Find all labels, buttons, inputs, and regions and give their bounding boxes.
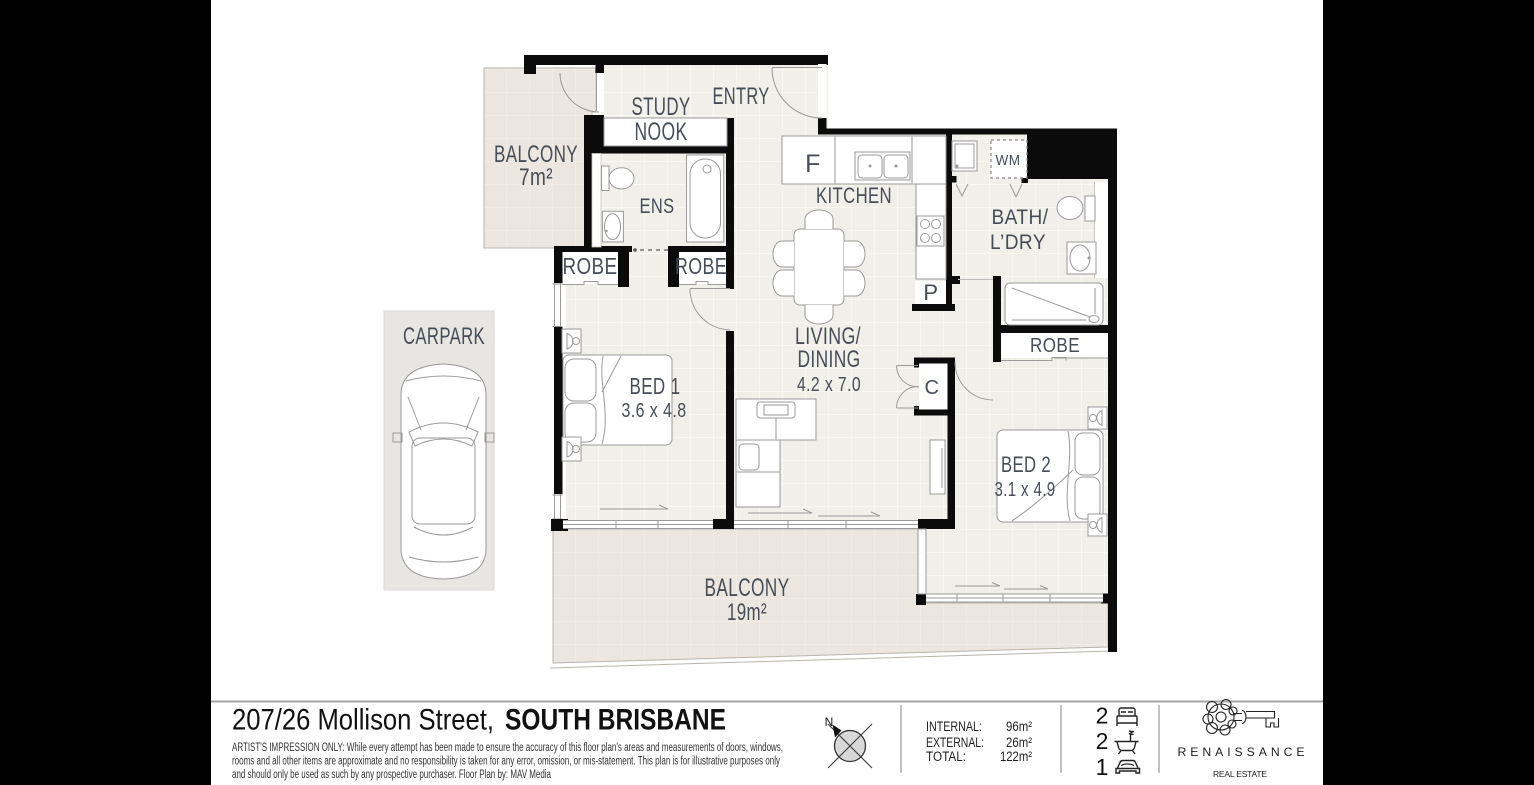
svg-text:2: 2	[1096, 703, 1109, 729]
svg-text:BATH/: BATH/	[992, 206, 1049, 229]
svg-text:F: F	[805, 150, 821, 178]
svg-text:7m²: 7m²	[519, 164, 553, 191]
svg-text:ROBE: ROBE	[1030, 335, 1080, 357]
svg-text:P: P	[923, 280, 938, 305]
svg-text:207/26 Mollison Street,: 207/26 Mollison Street,	[232, 704, 494, 737]
svg-text:ARTIST'S IMPRESSION ONLY: Whil: ARTIST'S IMPRESSION ONLY: While every at…	[232, 742, 783, 754]
svg-text:2: 2	[1096, 728, 1109, 754]
svg-text:BED 1: BED 1	[630, 373, 681, 399]
svg-text:RENAISSANCE: RENAISSANCE	[1178, 745, 1305, 759]
svg-text:N: N	[825, 715, 834, 729]
svg-text:96m²: 96m²	[1006, 719, 1032, 734]
svg-text:NOOK: NOOK	[635, 118, 688, 146]
svg-text:STUDY: STUDY	[632, 93, 691, 121]
svg-text:C: C	[925, 377, 940, 399]
svg-text:19m²: 19m²	[727, 599, 767, 626]
svg-text:SOUTH BRISBANE: SOUTH BRISBANE	[505, 704, 726, 737]
svg-text:CARPARK: CARPARK	[403, 323, 485, 350]
svg-text:DINING: DINING	[798, 346, 861, 373]
svg-text:26m²: 26m²	[1006, 735, 1032, 750]
svg-text:and should only be used as suc: and should only be used as such by any p…	[232, 769, 551, 781]
svg-text:4.2 x 7.0: 4.2 x 7.0	[797, 374, 861, 396]
svg-text:3.6 x 4.8: 3.6 x 4.8	[622, 400, 687, 422]
svg-text:TOTAL:: TOTAL:	[926, 749, 966, 764]
svg-text:ENTRY: ENTRY	[713, 83, 770, 110]
svg-text:3.1 x 4.9: 3.1 x 4.9	[995, 479, 1056, 501]
svg-text:ROBE: ROBE	[675, 253, 727, 279]
svg-text:ROBE: ROBE	[563, 253, 618, 279]
svg-text:EXTERNAL:: EXTERNAL:	[926, 735, 984, 750]
svg-text:BED 2: BED 2	[1001, 452, 1051, 477]
svg-text:ENS: ENS	[640, 195, 675, 218]
svg-text:WM: WM	[996, 152, 1021, 169]
svg-text:rooms and all other items are: rooms and all other items are approximat…	[232, 756, 780, 768]
svg-text:1: 1	[1096, 754, 1109, 780]
svg-text:KITCHEN: KITCHEN	[816, 183, 892, 208]
svg-text:L’DRY: L’DRY	[990, 231, 1046, 254]
svg-text:BALCONY: BALCONY	[705, 574, 790, 602]
svg-text:INTERNAL:: INTERNAL:	[926, 719, 982, 734]
svg-text:122m²: 122m²	[1000, 749, 1032, 764]
svg-text:REAL ESTATE: REAL ESTATE	[1213, 769, 1267, 779]
